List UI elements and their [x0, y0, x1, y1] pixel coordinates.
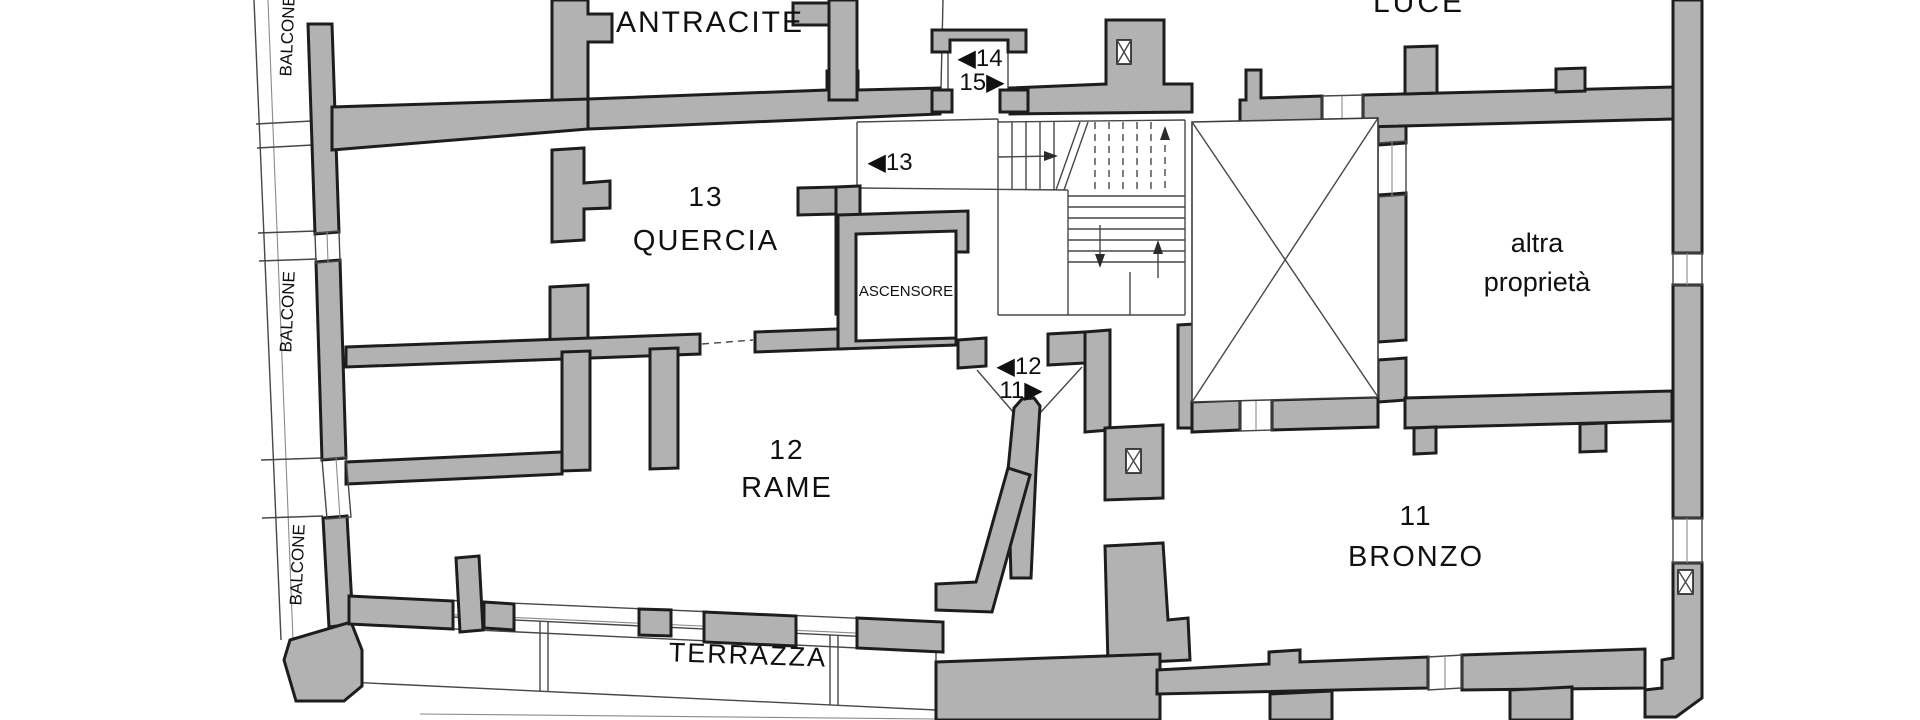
wall-pier: [798, 187, 836, 215]
wall-segment: [346, 334, 700, 367]
entrance-marker-apt14: ◀14: [957, 45, 1002, 72]
room-label-altra-line2: proprietà: [1484, 267, 1592, 297]
balcony-label-mid: BALCONE: [276, 271, 299, 353]
wall-segment: [936, 654, 1160, 720]
balcony-divider: [258, 231, 316, 233]
entry-funnel-line: [1040, 367, 1082, 413]
wall-segment: [1010, 20, 1192, 114]
wall-segment: [1240, 70, 1322, 126]
stair-arrow-down: [1095, 254, 1105, 268]
wall-segment: [1673, 285, 1702, 518]
wall-pier: [932, 90, 952, 112]
room-label-antracite: ANTRACITE: [616, 6, 804, 39]
walls: [284, 0, 1702, 720]
window-mid-line: [336, 458, 340, 518]
wall-segment: [1405, 391, 1672, 428]
wall-segment: [1157, 650, 1428, 694]
floor-plan-svg: ANTRACITE LUCE 13 QUERCIA ASCENSORE altr…: [0, 0, 1920, 720]
wall-segment: [1105, 543, 1190, 664]
entrance-marker-apt12: ◀12: [996, 353, 1041, 380]
stair-arrow-up: [1153, 240, 1163, 254]
wall-segment: [1462, 649, 1645, 690]
entrance-marker-apt13: ◀13: [867, 149, 912, 176]
wall-pier: [552, 148, 610, 242]
wall-segment: [1378, 193, 1406, 342]
wall-segment: [562, 351, 590, 471]
room-label-bronzo: BRONZO: [1348, 541, 1484, 573]
wall-segment: [857, 618, 943, 652]
hall-line: [858, 188, 1068, 190]
window-mid-line: [327, 232, 328, 262]
stair-arrow-up: [1160, 126, 1170, 140]
wall-segment: [1378, 358, 1406, 402]
terrace-lower-edge: [420, 714, 936, 719]
wall-segment: [588, 71, 940, 129]
hall-line: [857, 119, 998, 122]
wall-segment: [456, 556, 483, 632]
staircase: [998, 119, 1185, 315]
wall-pier: [1580, 423, 1606, 452]
balcony-divider: [256, 121, 312, 124]
balcony-divider: [261, 458, 322, 460]
stair-arrow-right: [1044, 151, 1058, 161]
wall-pier: [1405, 46, 1437, 94]
wall-pier: [1048, 332, 1085, 365]
stair-boundary: [998, 120, 1185, 122]
floor-plan: ANTRACITE LUCE 13 QUERCIA ASCENSORE altr…: [0, 0, 1920, 720]
room-label-altra-line1: altra: [1511, 228, 1565, 258]
wall-segment: [1192, 400, 1240, 432]
wall-segment: [829, 0, 857, 100]
wall-segment: [332, 99, 588, 150]
wall-segment: [1673, 0, 1702, 253]
wall-pier: [958, 338, 986, 368]
wall-segment: [316, 260, 346, 460]
entrance-marker-apt15: 15▶: [959, 69, 1005, 96]
room-number-rame: 12: [769, 434, 804, 465]
wall-segment: [639, 609, 671, 636]
room-number-quercia: 13: [688, 181, 723, 212]
wall-segment: [346, 452, 562, 484]
balcony-divider: [257, 145, 313, 148]
room-label-rame: RAME: [741, 472, 833, 504]
wall-pier: [1510, 687, 1572, 720]
wall-segment: [650, 348, 678, 469]
balcony-divider: [259, 259, 317, 261]
room-label-quercia: QUERCIA: [633, 225, 779, 257]
wall-corner: [284, 622, 362, 701]
wall-pier: [1556, 68, 1585, 92]
door-opening-dashed: [702, 340, 753, 344]
wall-segment: [552, 0, 612, 102]
wall-pier: [1414, 427, 1436, 454]
entrance-marker-apt11: 11▶: [999, 377, 1043, 404]
room-label-ascensore: ASCENSORE: [859, 283, 953, 300]
wall-pier: [1270, 691, 1332, 720]
room-label-luce: LUCE: [1373, 0, 1465, 19]
balcony-label-bottom: BALCONE: [286, 524, 309, 606]
wall-segment: [484, 602, 514, 630]
terrace-label: TERRAZZA: [668, 637, 827, 673]
balcony-label-top: BALCONE: [276, 0, 299, 77]
wall-segment: [349, 596, 453, 629]
wall-segment: [1272, 397, 1378, 430]
balcony-divider: [262, 516, 323, 518]
light-well: [1192, 118, 1378, 402]
wall-segment: [1085, 330, 1110, 432]
room-number-bronzo: 11: [1399, 500, 1432, 531]
